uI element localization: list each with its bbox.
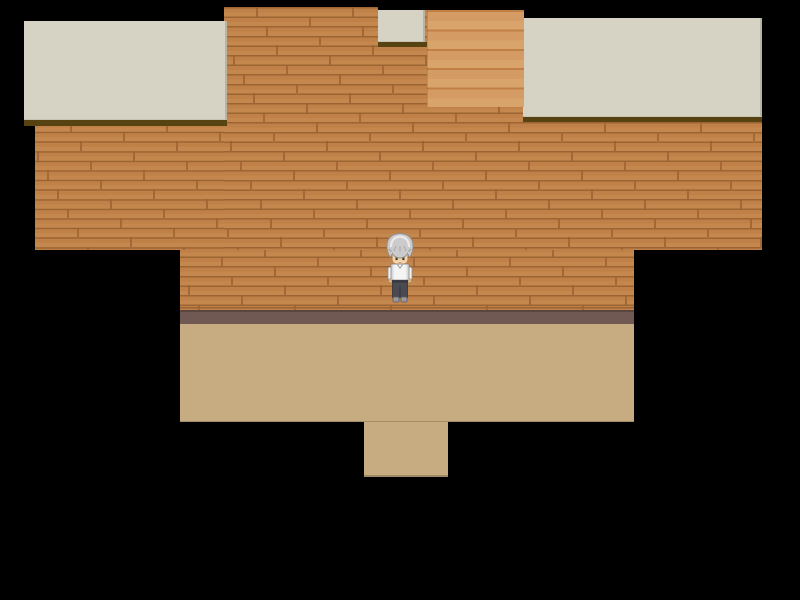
character-shirt bbox=[391, 264, 409, 282]
void-mask bbox=[378, 0, 524, 10]
floor[interactable] bbox=[180, 324, 634, 422]
ceiling-slab-right bbox=[523, 18, 762, 117]
roof-block-shadow bbox=[378, 42, 427, 47]
player-character[interactable] bbox=[385, 233, 415, 303]
wall-baseboard bbox=[180, 310, 634, 324]
void-mask bbox=[523, 0, 763, 18]
character-pants bbox=[393, 282, 408, 298]
ceiling-shadow-left bbox=[24, 120, 227, 126]
character-hair bbox=[387, 234, 413, 259]
ceiling-shadow-right bbox=[523, 117, 762, 122]
roof-block-top bbox=[378, 10, 425, 42]
ceiling-slab-left bbox=[24, 21, 227, 120]
wall-left-wing bbox=[35, 125, 224, 250]
game-viewport bbox=[0, 0, 800, 600]
floor-doorway[interactable] bbox=[364, 422, 448, 477]
stairs-panel[interactable] bbox=[427, 10, 524, 107]
